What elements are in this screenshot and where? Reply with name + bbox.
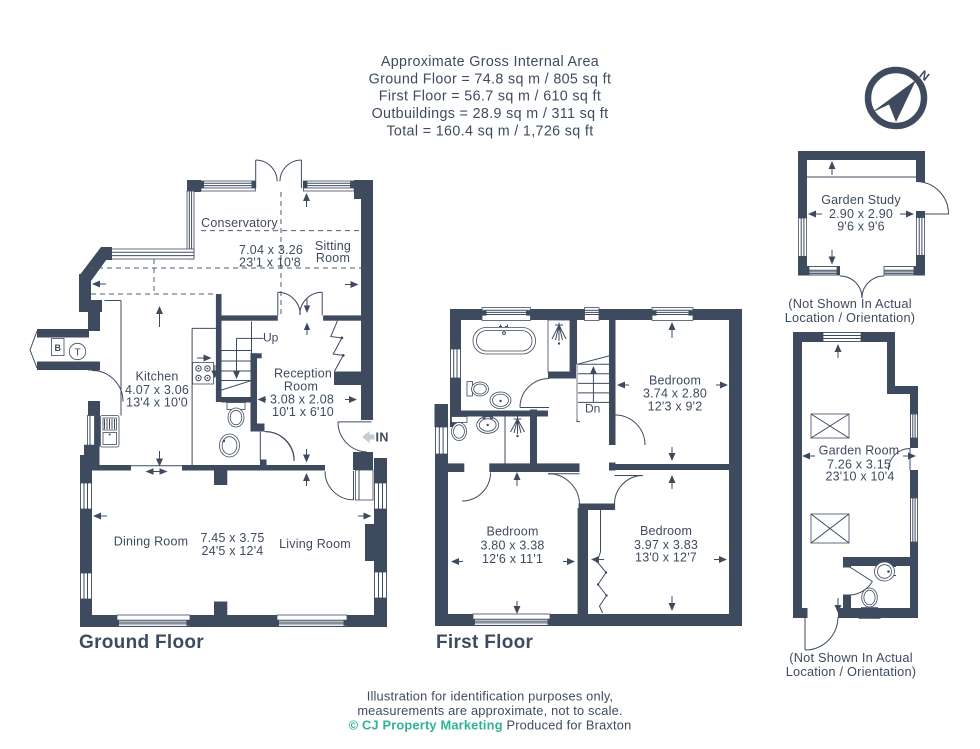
svg-text:Bedroom: Bedroom (640, 524, 692, 538)
svg-text:Room: Room (284, 380, 318, 394)
svg-text:13'0 x 12'7: 13'0 x 12'7 (635, 551, 697, 565)
svg-text:Conservatory: Conservatory (201, 216, 278, 230)
svg-text:B: B (54, 343, 61, 353)
svg-text:Location / Orientation): Location / Orientation) (786, 664, 917, 679)
svg-text:Location / Orientation): Location / Orientation) (785, 310, 916, 325)
svg-text:23'10 x 10'4: 23'10 x 10'4 (825, 470, 894, 484)
svg-text:measurements are approximate,: measurements are approximate, not to sca… (357, 703, 622, 718)
svg-text:Ground Floor = 74.8 sq m / 805: Ground Floor = 74.8 sq m / 805 sq ft (369, 71, 612, 87)
svg-text:Ground Floor: Ground Floor (79, 632, 204, 653)
svg-text:Room: Room (316, 251, 350, 265)
svg-text:Reception: Reception (274, 367, 332, 381)
svg-text:Dn: Dn (585, 402, 600, 416)
svg-text:Up: Up (263, 331, 279, 345)
svg-text:10'1 x 6'10: 10'1 x 6'10 (272, 405, 334, 419)
svg-text:Outbuildings = 28.9 sq m / 311: Outbuildings = 28.9 sq m / 311 sq ft (372, 106, 609, 122)
svg-text:Bedroom: Bedroom (486, 525, 538, 539)
svg-text:Total = 160.4 sq m / 1,726 sq: Total = 160.4 sq m / 1,726 sq ft (386, 123, 593, 139)
svg-text:9'6 x 9'6: 9'6 x 9'6 (837, 220, 885, 234)
svg-text:© CJ Property Marketing Produ: © CJ Property Marketing Produced for Bra… (349, 718, 632, 733)
svg-text:12'3 x 9'2: 12'3 x 9'2 (648, 400, 703, 414)
svg-text:Kitchen: Kitchen (135, 370, 178, 384)
svg-text:12'6 x 11'1: 12'6 x 11'1 (482, 552, 543, 566)
svg-text:23'1 x 10'8: 23'1 x 10'8 (239, 256, 301, 270)
svg-text:3.74 x 2.80: 3.74 x 2.80 (643, 387, 707, 401)
svg-text:First Floor = 56.7 sq m / 610: First Floor = 56.7 sq m / 610 sq ft (379, 89, 601, 105)
svg-text:Bedroom: Bedroom (649, 374, 701, 388)
svg-text:Illustration for identificatio: Illustration for identification purposes… (367, 689, 614, 704)
svg-text:IN: IN (376, 431, 389, 445)
svg-text:Garden Study: Garden Study (821, 193, 901, 207)
svg-text:Garden Room: Garden Room (819, 444, 900, 458)
svg-text:(Not Shown In Actual: (Not Shown In Actual (788, 296, 912, 311)
svg-text:13'4 x 10'0: 13'4 x 10'0 (126, 396, 188, 410)
svg-text:Dining Room: Dining Room (114, 535, 188, 549)
svg-text:Approximate Gross Internal Are: Approximate Gross Internal Area (381, 54, 599, 70)
svg-text:Living Room: Living Room (279, 537, 351, 551)
svg-text:T: T (74, 348, 80, 359)
svg-text:First Floor: First Floor (436, 632, 534, 653)
svg-text:24'5 x 12'4: 24'5 x 12'4 (202, 544, 264, 558)
svg-text:3.80 x 3.38: 3.80 x 3.38 (480, 539, 544, 553)
svg-text:(Not Shown In Actual: (Not Shown In Actual (789, 650, 913, 665)
svg-text:7.45 x 3.75: 7.45 x 3.75 (200, 531, 264, 545)
